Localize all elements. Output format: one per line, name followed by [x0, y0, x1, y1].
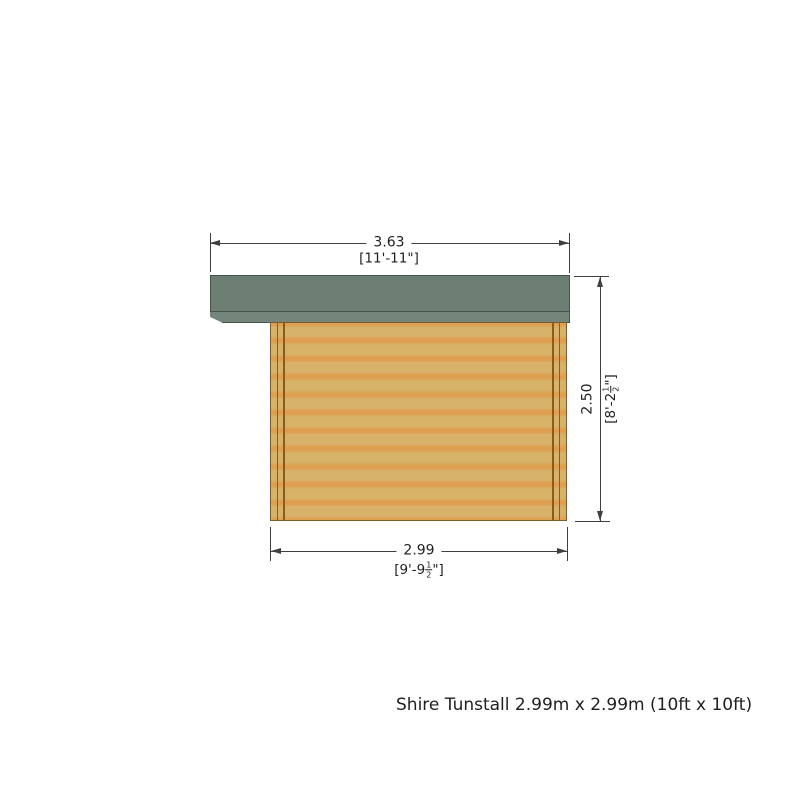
fraction-denominator: 2 [611, 386, 620, 393]
wall-height-metric-label: 2.50 [580, 378, 595, 419]
dim-arrow-down-icon [597, 511, 603, 521]
imperial-text-prefix: [9'-9 [394, 562, 425, 578]
fraction: 12 [602, 386, 620, 393]
dim-arrow-left-icon [271, 548, 281, 554]
wall-width-metric-label: 2.99 [396, 543, 441, 558]
extension-line-right-top [574, 276, 609, 277]
dimension-line-right [600, 277, 601, 521]
overall-width-imperial-label: [11'-11"] [359, 252, 419, 267]
drawing-canvas: 3.63 [11'-11"] 2.99 [9'-912"] 2.50 [8'-2… [0, 0, 800, 800]
wall-width-imperial-label: [9'-912"] [394, 561, 444, 579]
extension-line-bottom-right [567, 527, 568, 561]
dim-arrow-left-icon [210, 240, 220, 246]
product-caption: Shire Tunstall 2.99m x 2.99m (10ft x 10f… [396, 695, 752, 715]
corner-trim-left-outer [277, 323, 278, 520]
corner-trim-right-inner [552, 323, 554, 520]
overall-width-metric-label: 3.63 [366, 235, 411, 250]
corner-trim-left-inner [283, 323, 285, 520]
extension-line-top-right [569, 233, 570, 273]
extension-line-bottom-left [270, 527, 271, 561]
wall-height-imperial-label: [8'-212"] [602, 369, 620, 429]
dim-arrow-up-icon [597, 277, 603, 287]
dim-arrow-right-icon [557, 548, 567, 554]
corner-trim-right-outer [559, 323, 560, 520]
roof-panel [210, 275, 570, 312]
extension-line-right-bottom [575, 521, 610, 522]
fraction-numerator: 1 [602, 386, 611, 393]
log-wall [270, 322, 567, 521]
dim-arrow-right-icon [559, 240, 569, 246]
imperial-text-prefix: [8'-2 [603, 393, 619, 424]
imperial-text-suffix: "] [603, 374, 619, 385]
imperial-text-suffix: "] [432, 562, 443, 578]
extension-line-top-left [210, 233, 211, 272]
